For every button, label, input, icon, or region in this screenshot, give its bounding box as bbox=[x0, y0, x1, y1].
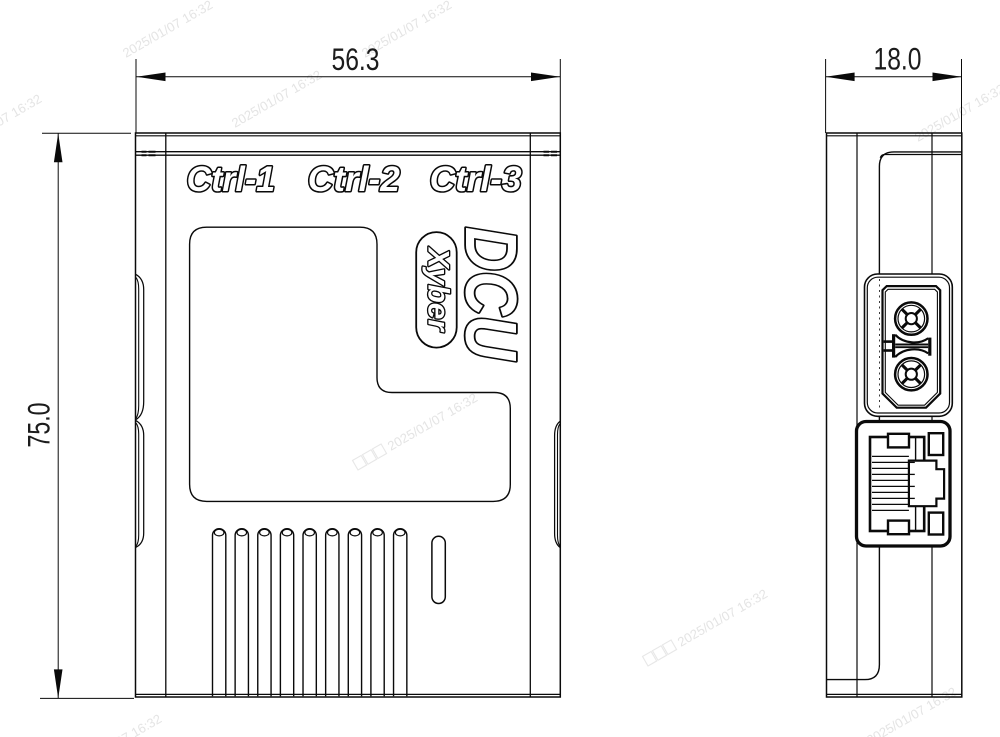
svg-text:18.0: 18.0 bbox=[874, 40, 922, 76]
svg-text:2025/01/07 16:32: 2025/01/07 16:32 bbox=[69, 711, 164, 737]
svg-text:Xyber: Xyber bbox=[422, 246, 455, 333]
svg-text:Ctrl-2: Ctrl-2 bbox=[308, 159, 400, 199]
svg-text:Ctrl-1: Ctrl-1 bbox=[187, 159, 276, 199]
svg-text:2025/01/07 16:32: 2025/01/07 16:32 bbox=[912, 81, 1000, 145]
svg-text:2025/01/07 16:32: 2025/01/07 16:32 bbox=[675, 586, 770, 650]
svg-text:2025/01/07 16:32: 2025/01/07 16:32 bbox=[120, 0, 215, 61]
svg-text:56.3: 56.3 bbox=[332, 41, 380, 77]
svg-text:2025/01/07 16:32: 2025/01/07 16:32 bbox=[385, 390, 480, 454]
svg-text:75.0: 75.0 bbox=[20, 403, 56, 448]
svg-text:2025/01/07 16:32: 2025/01/07 16:32 bbox=[864, 684, 959, 737]
svg-text:Ctrl-3: Ctrl-3 bbox=[430, 159, 522, 199]
svg-text:2025/01/07 16:32: 2025/01/07 16:32 bbox=[0, 91, 44, 155]
svg-text:DCU: DCU bbox=[450, 227, 530, 362]
